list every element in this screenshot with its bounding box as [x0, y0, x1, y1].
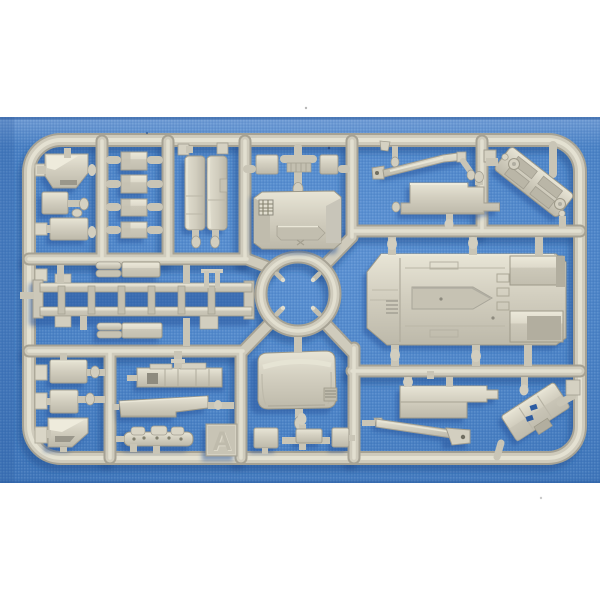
- svg-text:A: A: [212, 426, 232, 456]
